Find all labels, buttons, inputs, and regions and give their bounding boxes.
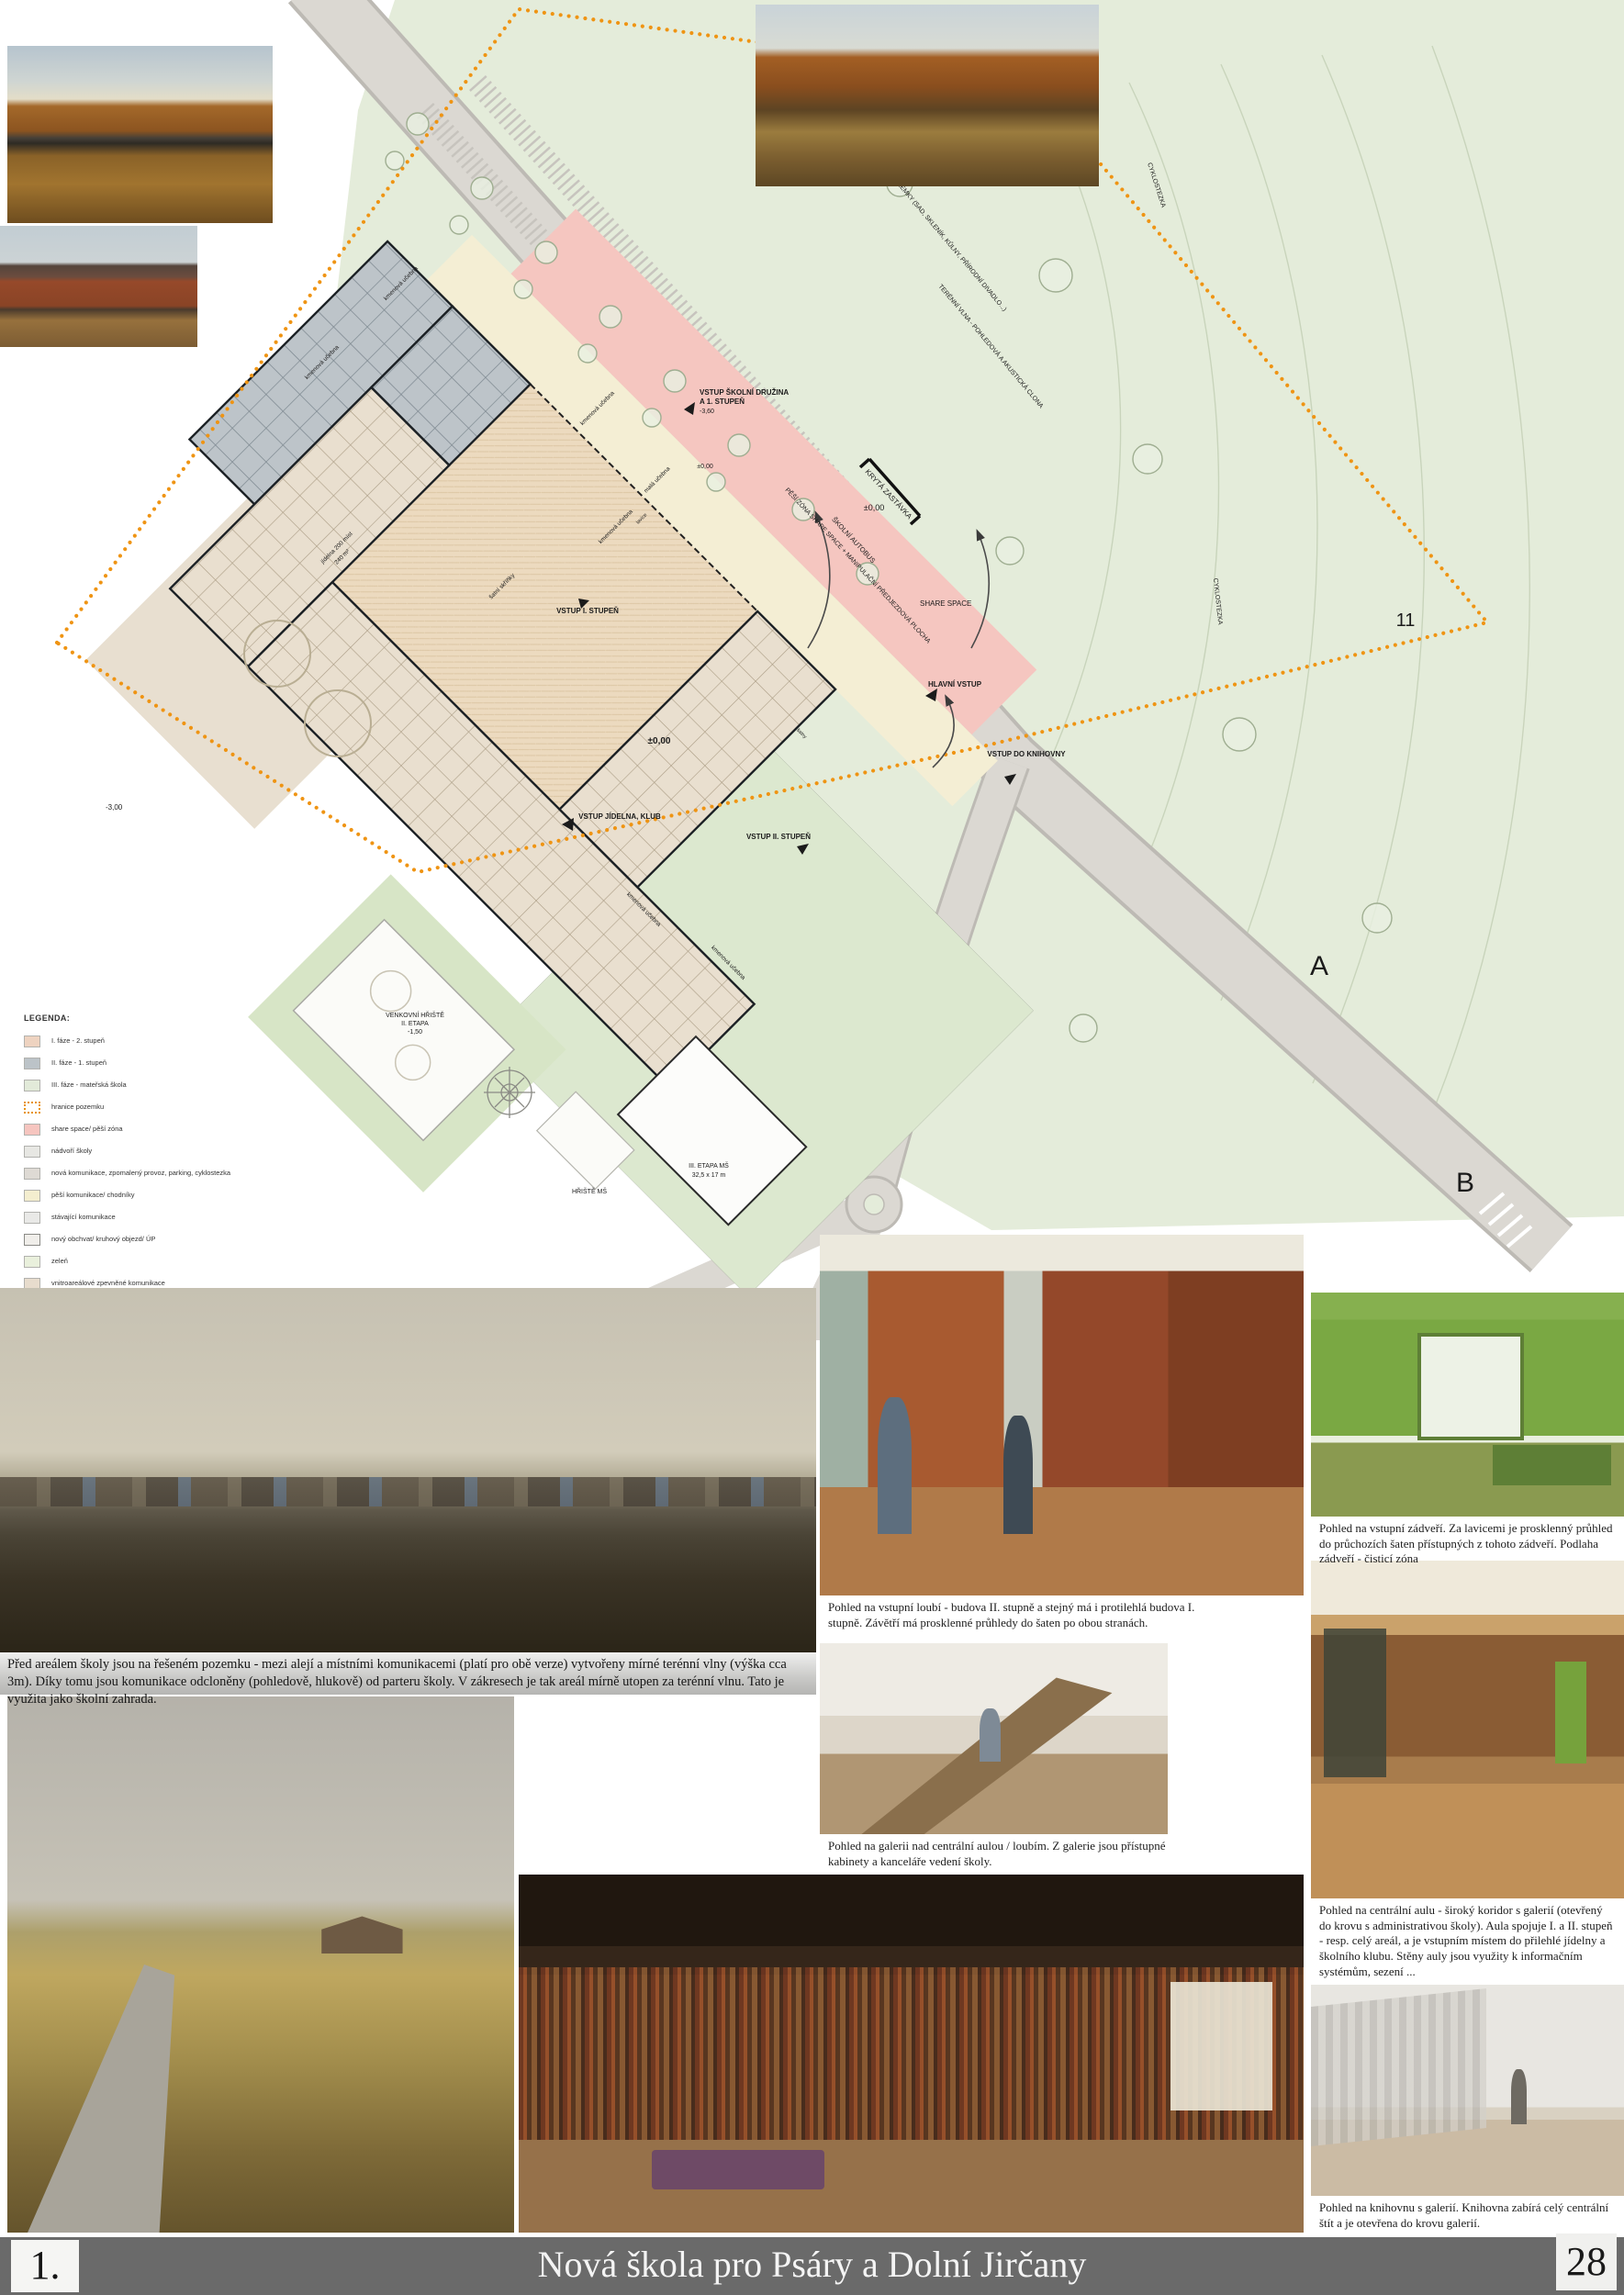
figure bbox=[1511, 2069, 1527, 2124]
plan-label: -3,60 bbox=[700, 409, 714, 415]
legend-item: hranice pozemku bbox=[24, 1102, 270, 1114]
village-silhouette bbox=[0, 1477, 816, 1506]
legend-item: nádvoří školy bbox=[24, 1146, 270, 1158]
figure bbox=[878, 1397, 912, 1534]
legend-swatch bbox=[24, 1058, 40, 1069]
photo-aula-corridor bbox=[1311, 1561, 1624, 1898]
plan-label: VSTUP ŠKOLNÍ DRUŽINA bbox=[700, 388, 789, 397]
photo-meadow-road bbox=[7, 1696, 514, 2233]
plan-label: 32,5 x 17 m bbox=[692, 1172, 726, 1179]
legend-swatch bbox=[24, 1190, 40, 1202]
plan-label: ±0,00 bbox=[864, 503, 884, 512]
caption-galerie: Pohled na galerii nad centrální aulou / … bbox=[820, 1834, 1215, 1875]
photo-zadveri-green bbox=[1311, 1293, 1624, 1517]
plan-label: A bbox=[1310, 951, 1328, 981]
plan-label: VSTUP II. STUPEŇ bbox=[746, 833, 811, 841]
plan-label: ±0,00 bbox=[697, 464, 713, 470]
legend-item: zeleň bbox=[24, 1256, 270, 1268]
plan-label: VSTUP I. STUPEŇ bbox=[556, 607, 619, 615]
legend-swatch bbox=[24, 1256, 40, 1268]
caption-loubi: Pohled na vstupní loubí - budova II. stu… bbox=[820, 1595, 1215, 1643]
legend-items: I. fáze - 2. stupeňII. fáze - 1. stupeňI… bbox=[24, 1036, 270, 1312]
figure bbox=[980, 1708, 1001, 1762]
shelf-silhouettes bbox=[1311, 1988, 1486, 2146]
caption-aula: Pohled na centrální aulu - široký korido… bbox=[1311, 1898, 1624, 1985]
plan-label: A 1. STUPEŇ bbox=[700, 397, 745, 406]
legend-item: I. fáze - 2. stupeň bbox=[24, 1036, 270, 1047]
legend-item: nový obchvat/ kruhový objezd/ ÚP bbox=[24, 1234, 270, 1246]
photo-galerie-stairs bbox=[820, 1643, 1168, 1834]
legend-item: pěší komunikace/ chodníky bbox=[24, 1190, 270, 1202]
legend-label: hranice pozemku bbox=[51, 1102, 104, 1111]
legend-item: share space/ pěší zóna bbox=[24, 1124, 270, 1136]
board-title: Nová škola pro Psáry a Dolní Jirčany bbox=[0, 2243, 1624, 2286]
footer-bar: 1. Nová škola pro Psáry a Dolní Jirčany … bbox=[0, 2237, 1624, 2295]
legend-title: LEGENDA: bbox=[24, 1013, 270, 1023]
plan-label: VENKOVNÍ HŘIŠTĚ bbox=[386, 1011, 444, 1019]
plan-label: ±0,00 bbox=[648, 736, 671, 746]
house-silhouette bbox=[321, 1916, 402, 1954]
plan-label: VSTUP JÍDELNA, KLUB bbox=[578, 812, 661, 821]
legend-label: I. fáze - 2. stupeň bbox=[51, 1036, 105, 1045]
legend-swatch bbox=[24, 1036, 40, 1047]
legend-label: nádvoří školy bbox=[51, 1146, 92, 1155]
legend-swatch bbox=[24, 1212, 40, 1224]
glazing bbox=[1324, 1629, 1386, 1777]
legend-swatch bbox=[24, 1102, 40, 1114]
bench bbox=[1493, 1445, 1612, 1485]
caption-zadveri: Pohled na vstupní zádveří. Za lavicemi j… bbox=[1311, 1517, 1624, 1561]
window bbox=[1170, 1982, 1272, 2110]
legend-item: II. fáze - 1. stupeň bbox=[24, 1058, 270, 1069]
legend-swatch bbox=[24, 1234, 40, 1246]
photo-panorama-village bbox=[0, 1288, 816, 1652]
legend-item: III. fáze - mateřská škola bbox=[24, 1080, 270, 1092]
photo-library bbox=[519, 1875, 1304, 2233]
legend-swatch bbox=[24, 1080, 40, 1092]
figure bbox=[1003, 1416, 1033, 1535]
legend-label: stávající komunikace bbox=[51, 1212, 116, 1221]
photo-loubi bbox=[820, 1235, 1304, 1595]
legend-label: nový obchvat/ kruhový objezd/ ÚP bbox=[51, 1234, 155, 1243]
page-number: 28 bbox=[1556, 2233, 1617, 2290]
legend-swatch bbox=[24, 1146, 40, 1158]
plan-label: HŘIŠTĚ MŠ bbox=[572, 1187, 607, 1195]
plan-label: 11 bbox=[1396, 610, 1416, 631]
legend-swatch bbox=[24, 1168, 40, 1180]
competition-board: VSTUP ŠKOLNÍ DRUŽINAA 1. STUPEŇ-3,60VSTU… bbox=[0, 0, 1624, 2295]
sofa bbox=[652, 2150, 824, 2189]
green-info-wall bbox=[1555, 1662, 1586, 1763]
photo-exterior-approach bbox=[7, 46, 273, 223]
legend-label: nová komunikace, zpomalený provoz, parki… bbox=[51, 1168, 230, 1177]
caption-knihovna: Pohled na knihovnu s galerií. Knihovna z… bbox=[1311, 2196, 1624, 2237]
legend-label: III. fáze - mateřská škola bbox=[51, 1080, 127, 1089]
legend-label: share space/ pěší zóna bbox=[51, 1124, 123, 1133]
photo-exterior-street bbox=[756, 5, 1099, 186]
plan-label: VSTUP DO KNIHOVNY bbox=[987, 750, 1066, 758]
legend-label: pěší komunikace/ chodníky bbox=[51, 1190, 134, 1199]
window-opening bbox=[1417, 1333, 1524, 1440]
legend-label: II. fáze - 1. stupeň bbox=[51, 1058, 106, 1067]
photo-knihovna-galerie bbox=[1311, 1985, 1624, 2196]
legend-label: vnitroareálové zpevněné komunikace bbox=[51, 1278, 165, 1287]
legend-swatch bbox=[24, 1124, 40, 1136]
plan-label: B bbox=[1456, 1168, 1474, 1198]
plan-label: -1,50 bbox=[408, 1029, 422, 1036]
plan-label: SHARE SPACE bbox=[920, 599, 971, 608]
photo-exterior-gym bbox=[0, 226, 197, 347]
plan-legend: LEGENDA: I. fáze - 2. stupeňII. fáze - 1… bbox=[24, 1013, 270, 1322]
plan-label: -3,00 bbox=[106, 803, 123, 812]
plan-label: III. ETAPA MŠ bbox=[689, 1161, 729, 1170]
road-wedge bbox=[7, 1696, 514, 2233]
plan-label: HLAVNÍ VSTUP bbox=[928, 680, 982, 688]
plan-label: II. ETAPA bbox=[401, 1021, 429, 1027]
legend-item: stávající komunikace bbox=[24, 1212, 270, 1224]
legend-item: nová komunikace, zpomalený provoz, parki… bbox=[24, 1168, 270, 1180]
legend-label: zeleň bbox=[51, 1256, 68, 1265]
site-description: Před areálem školy jsou na řešeném pozem… bbox=[0, 1652, 816, 1695]
